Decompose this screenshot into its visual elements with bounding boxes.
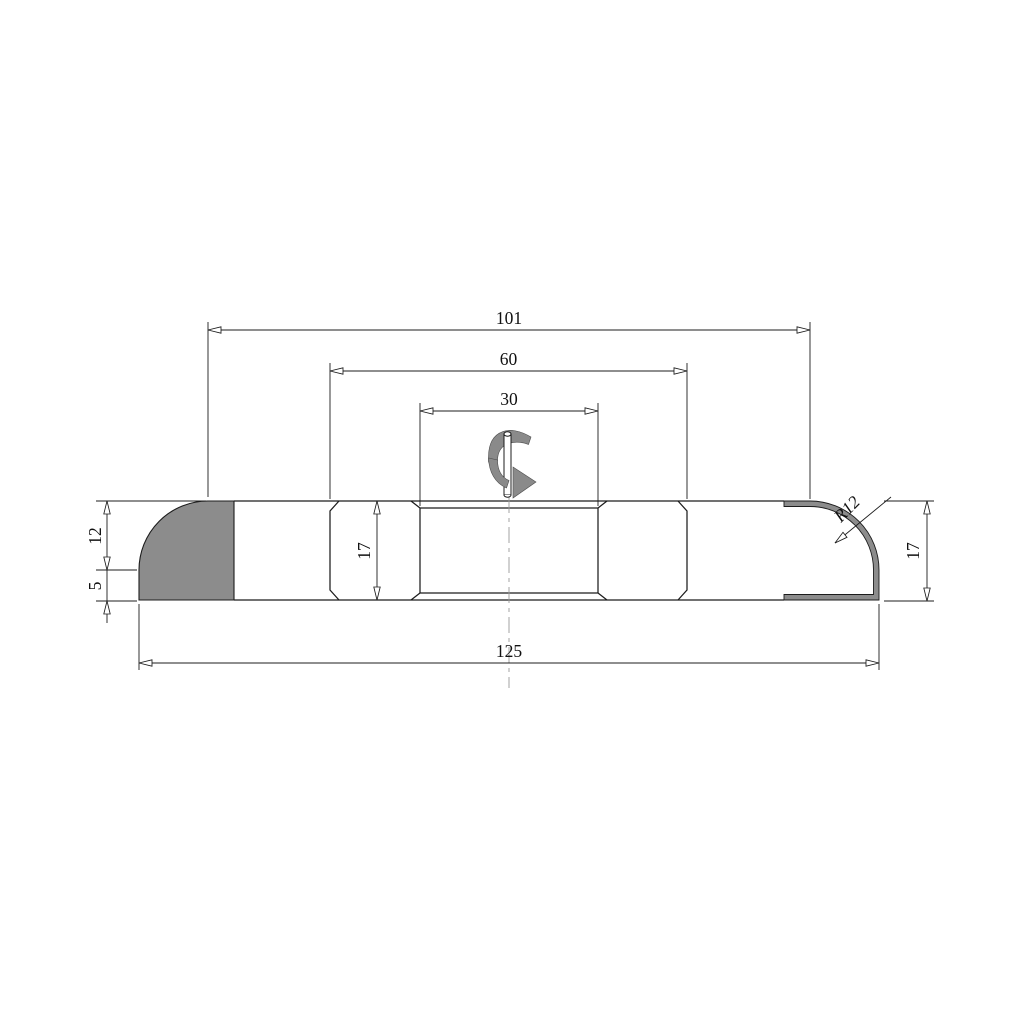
dim-30-label: 30	[500, 389, 518, 409]
drawing-canvas: 101 60 30 125 12 5 17 17	[0, 0, 1024, 1024]
dim-5-label: 5	[85, 581, 105, 590]
right-profile-outline	[784, 501, 879, 600]
dim-125-label: 125	[496, 641, 523, 661]
dim-arrow-top	[374, 501, 380, 514]
dim-arrow-left	[330, 368, 343, 374]
dim-17-mid-label: 17	[354, 542, 374, 560]
left-profile-cutter	[139, 501, 234, 600]
dim-arrow-up	[104, 601, 110, 614]
dimension-101: 101	[208, 308, 810, 333]
hub-right-edge	[678, 501, 687, 600]
rotation-axis-symbol	[489, 430, 537, 498]
dim-101-label: 101	[496, 308, 522, 328]
technical-drawing: 101 60 30 125 12 5 17 17	[0, 0, 1024, 1024]
axis-rod-top-cap	[504, 432, 511, 436]
dimension-30: 30	[420, 389, 598, 414]
dimension-5: 5	[85, 581, 110, 614]
dim-17-right-label: 17	[903, 542, 923, 560]
dim-arrow-top	[924, 501, 930, 514]
radius-leader-r12: R12	[829, 492, 891, 543]
dim-arrow-left	[139, 660, 152, 666]
dim-arrow-bottom	[104, 557, 110, 570]
rotation-arrowhead	[513, 467, 536, 498]
dimension-17-mid: 17	[354, 501, 380, 600]
dim-arrow-right	[797, 327, 810, 333]
dim-12-label: 12	[85, 527, 105, 545]
dim-arrow-bottom	[924, 588, 930, 601]
leader-arrow	[835, 532, 847, 543]
dim-arrow-left	[420, 408, 433, 414]
dimension-60: 60	[330, 349, 687, 374]
dim-arrow-right	[866, 660, 879, 666]
dimension-17-right: 17	[903, 501, 930, 601]
axis-rod-bottom-cap	[504, 495, 511, 497]
dim-arrow-bottom	[374, 587, 380, 600]
dim-arrow-right	[674, 368, 687, 374]
dim-arrow-left	[208, 327, 221, 333]
hub-left-edge	[330, 501, 339, 600]
dim-arrow-top	[104, 501, 110, 514]
dim-arrow-right	[585, 408, 598, 414]
dim-60-label: 60	[500, 349, 518, 369]
